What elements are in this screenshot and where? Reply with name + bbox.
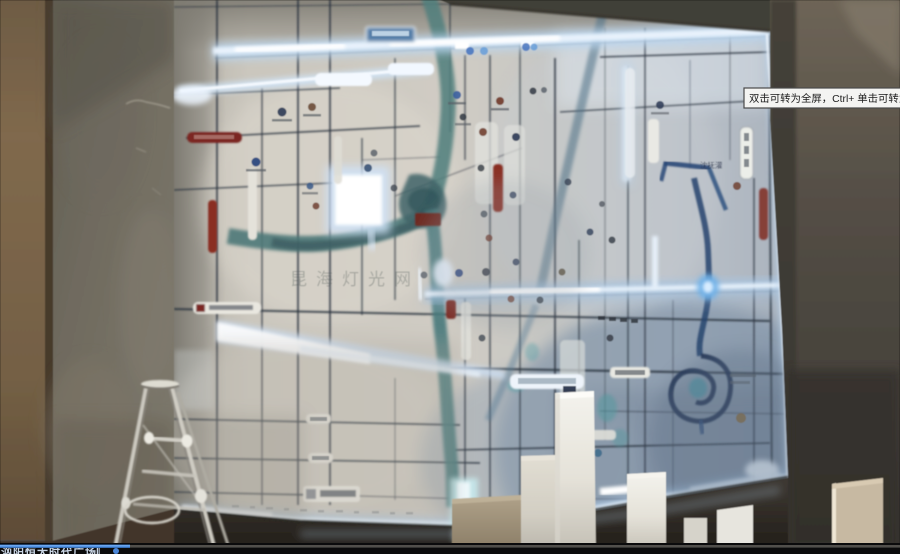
svg-text:沈抚灌: 沈抚灌	[700, 160, 723, 170]
svg-text:昆海灯光网: 昆海灯光网	[290, 270, 420, 289]
svg-text:双击可转为全屏，Ctrl+ 单击可转为: 双击可转为全屏，Ctrl+ 单击可转为	[749, 92, 900, 105]
